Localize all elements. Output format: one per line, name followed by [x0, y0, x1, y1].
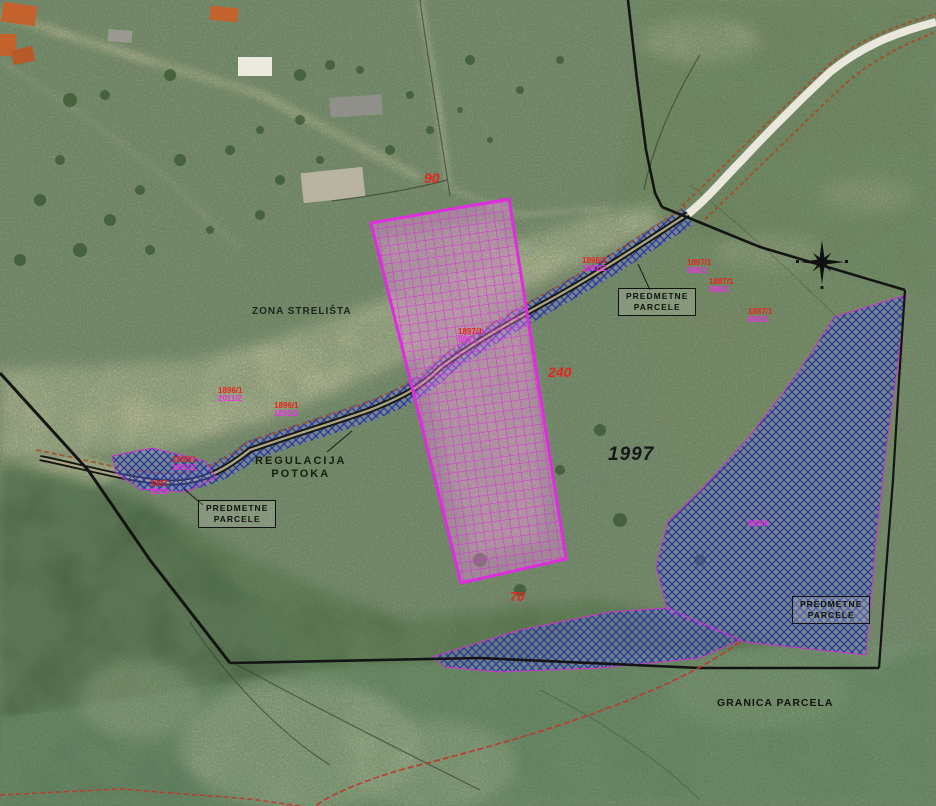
zone-strelista-label: ZONA STRELIŠTA [252, 306, 352, 317]
cadastral-label: 1897 2012 [150, 480, 168, 496]
parcel-number-1997: 1997 [608, 444, 654, 466]
predmetne-parcele-box-right[interactable]: PREDMETNE PARCELE [792, 596, 870, 624]
measurement-70: 70 [510, 589, 524, 604]
cadastral-label: 1897/1 888 [458, 328, 482, 344]
aerial-cadastral-map[interactable]: ZONA STRELIŠTA REGULACIJA POTOKA PREDMET… [0, 0, 936, 806]
predmetne-parcele-box-top[interactable]: PREDMETNE PARCELE [618, 288, 696, 316]
cadastral-label: 1896/1 1891/2 [582, 257, 606, 273]
predmetne-line2: PARCELE [808, 610, 855, 620]
map-canvas [0, 0, 936, 806]
measurement-90: 90 [424, 170, 440, 186]
predmetne-line1: PREDMETNE [206, 503, 268, 513]
predmetne-line1: PREDMETNE [626, 291, 688, 301]
measurement-240: 240 [548, 364, 571, 380]
predmetne-line1: PREDMETNE [800, 599, 862, 609]
cadastral-label: 1896/1 1891/2 [172, 456, 196, 472]
cadastral-label: 888/4 [748, 520, 768, 528]
cadastral-label: 1897/1 888/2 [687, 259, 711, 275]
granica-parcela-label: GRANICA PARCELA [717, 697, 834, 709]
cadastral-label: 1896/1 1891/2 [274, 402, 298, 418]
cadastral-label: 1896/1 2011/2 [218, 387, 242, 403]
cadastral-label: 1887/1 888/2 [748, 308, 772, 324]
predmetne-line2: PARCELE [634, 302, 681, 312]
predmetne-parcele-box-left[interactable]: PREDMETNE PARCELE [198, 500, 276, 528]
cadastral-label: 1887/1 888/2 [709, 278, 733, 294]
regulacija-potoka-label: REGULACIJA POTOKA [255, 455, 347, 481]
predmetne-line2: PARCELE [214, 514, 261, 524]
regulacija-line2: POTOKA [271, 468, 330, 480]
regulacija-line1: REGULACIJA [255, 455, 347, 467]
